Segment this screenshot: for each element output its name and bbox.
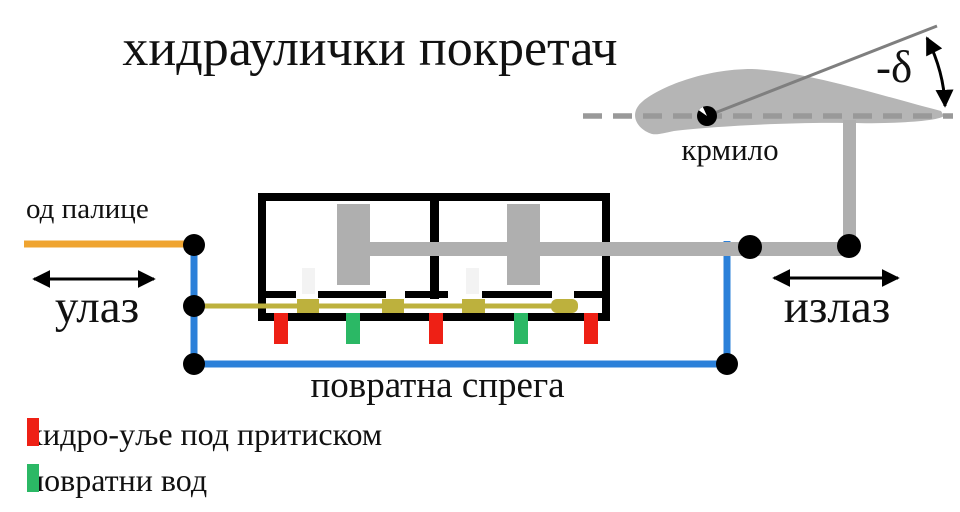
joint-feedback-corner	[716, 353, 738, 375]
pressure-mark	[429, 313, 443, 344]
joint-rod-feedback	[738, 235, 762, 259]
inner-bottom-segment	[405, 291, 448, 298]
return-mark	[346, 313, 360, 344]
legend-item-pressure-oil: хидро-уље под притиском	[27, 418, 382, 450]
housing-left-wall	[258, 193, 266, 320]
legend-label: хидро-уље под притиском	[27, 416, 382, 453]
inner-bottom-segment	[482, 291, 552, 298]
hydraulic-actuator-diagram: хидраулички покретач од палице улаз изла…	[0, 0, 960, 512]
inner-bottom-segment	[318, 291, 386, 298]
spool-block	[382, 299, 404, 313]
legend-swatch-green	[27, 464, 39, 492]
inner-bottom-segment	[266, 291, 296, 298]
legend-item-return-line: повратни вод	[27, 464, 207, 496]
piston-assembly	[337, 204, 856, 285]
piston-rod	[370, 242, 856, 256]
label-output: излаз	[766, 283, 908, 332]
label-input: улаз	[28, 283, 166, 332]
label-deflection-angle: -δ	[876, 44, 912, 91]
spool-block	[462, 299, 485, 313]
legend-swatch-red	[27, 418, 39, 446]
legend-label: повратни вод	[27, 462, 207, 499]
page-title: хидраулички покретач	[80, 22, 660, 77]
spool-block	[551, 299, 578, 313]
joint-rod-rudder	[837, 234, 861, 258]
valve-slots	[302, 268, 479, 294]
deflection-angle-arrow	[927, 38, 945, 106]
housing-right-wall	[602, 193, 610, 320]
pressure-mark	[584, 313, 598, 344]
joint-stick-lever	[183, 234, 205, 256]
joint-lever-spool	[183, 295, 205, 317]
pressure-mark	[274, 313, 288, 344]
label-feedback: повратна спрега	[280, 367, 595, 406]
spool-block	[297, 299, 319, 313]
piston-left	[337, 204, 370, 285]
joint-lever-feedback	[183, 353, 205, 375]
label-from-stick: од палице	[26, 194, 149, 224]
feedback-linkage	[194, 241, 727, 364]
inner-bottom-segment	[574, 291, 602, 298]
return-mark	[514, 313, 528, 344]
label-rudder: крмило	[660, 134, 800, 167]
